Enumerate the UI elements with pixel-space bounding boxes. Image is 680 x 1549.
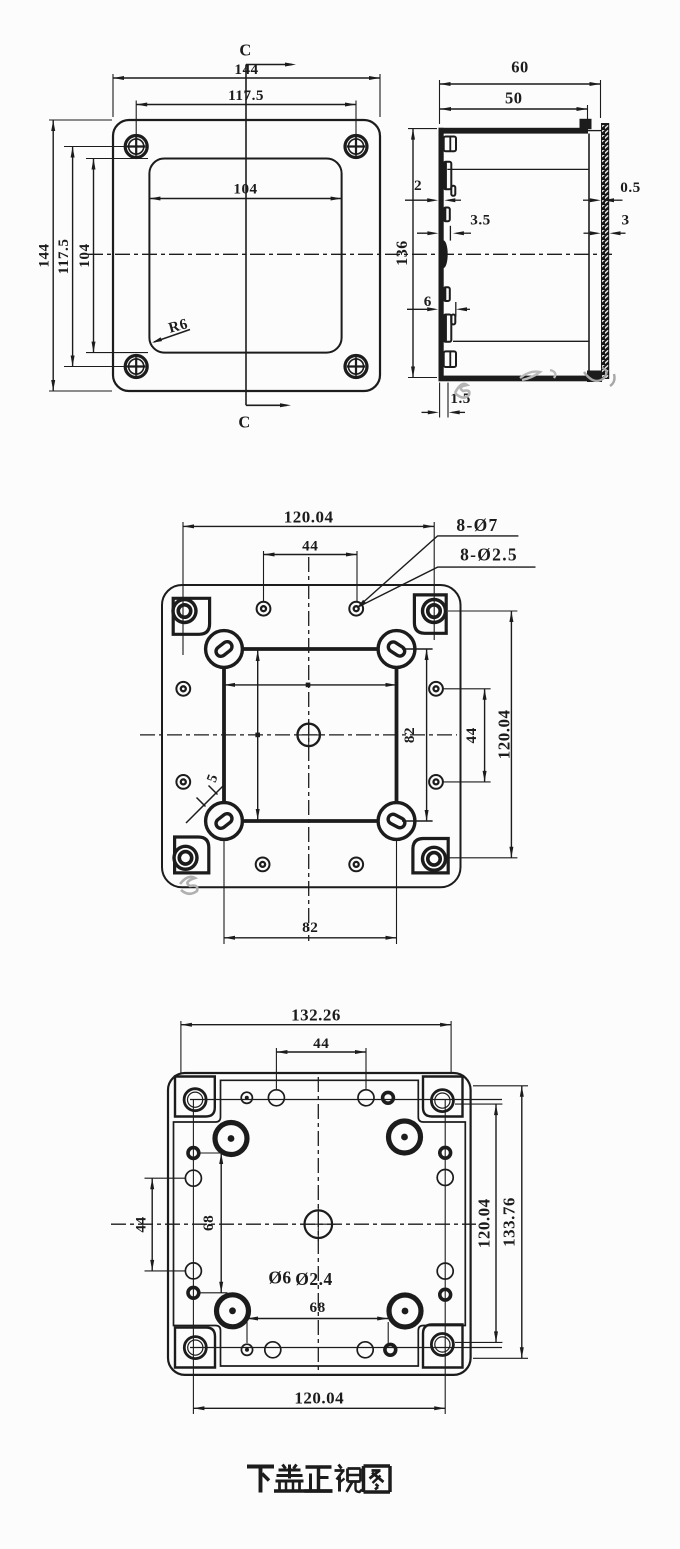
svg-text:44: 44	[302, 537, 318, 554]
svg-text:3: 3	[621, 211, 629, 228]
svg-text:120.04: 120.04	[284, 507, 334, 526]
svg-text:3.5: 3.5	[470, 211, 490, 228]
svg-text:104: 104	[76, 243, 93, 267]
svg-text:44: 44	[463, 727, 480, 743]
svg-text:8-Ø2.5: 8-Ø2.5	[460, 545, 518, 565]
svg-text:104: 104	[233, 180, 257, 197]
svg-text:C: C	[239, 40, 251, 59]
svg-text:117.5: 117.5	[55, 239, 72, 275]
svg-text:68: 68	[310, 1299, 326, 1316]
svg-text:144: 144	[35, 243, 52, 267]
svg-text:82: 82	[401, 727, 418, 743]
svg-text:44: 44	[313, 1035, 329, 1052]
svg-text:132.26: 132.26	[291, 1005, 341, 1024]
svg-text:133.76: 133.76	[499, 1197, 518, 1247]
svg-text:8-Ø7: 8-Ø7	[456, 515, 498, 535]
svg-text:44: 44	[132, 1216, 149, 1232]
svg-text:0.5: 0.5	[620, 179, 640, 196]
svg-text:136: 136	[394, 240, 411, 265]
svg-text:120.04: 120.04	[294, 1388, 344, 1407]
svg-text:50: 50	[505, 88, 523, 107]
svg-text:6: 6	[424, 293, 432, 310]
svg-text:1.5: 1.5	[450, 390, 470, 407]
svg-text:Ø2.4: Ø2.4	[295, 1269, 333, 1289]
svg-text:68: 68	[200, 1215, 217, 1231]
svg-text:C: C	[238, 412, 250, 431]
svg-text:Ø6: Ø6	[268, 1268, 291, 1288]
svg-text:82: 82	[302, 919, 318, 936]
svg-text:60: 60	[511, 57, 529, 76]
svg-text:117.5: 117.5	[228, 87, 264, 104]
svg-text:144: 144	[234, 61, 258, 78]
svg-text:120.04: 120.04	[494, 710, 513, 760]
svg-text:2: 2	[414, 177, 422, 194]
svg-text:120.04: 120.04	[474, 1198, 493, 1248]
